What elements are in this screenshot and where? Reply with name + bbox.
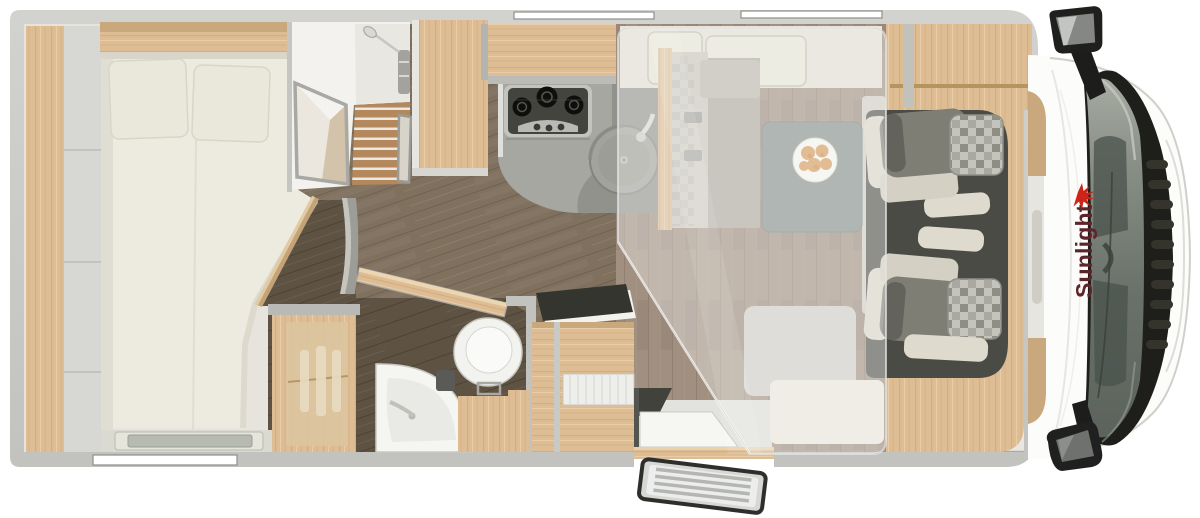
- svg-text:Sunlight: Sunlight: [1071, 204, 1097, 298]
